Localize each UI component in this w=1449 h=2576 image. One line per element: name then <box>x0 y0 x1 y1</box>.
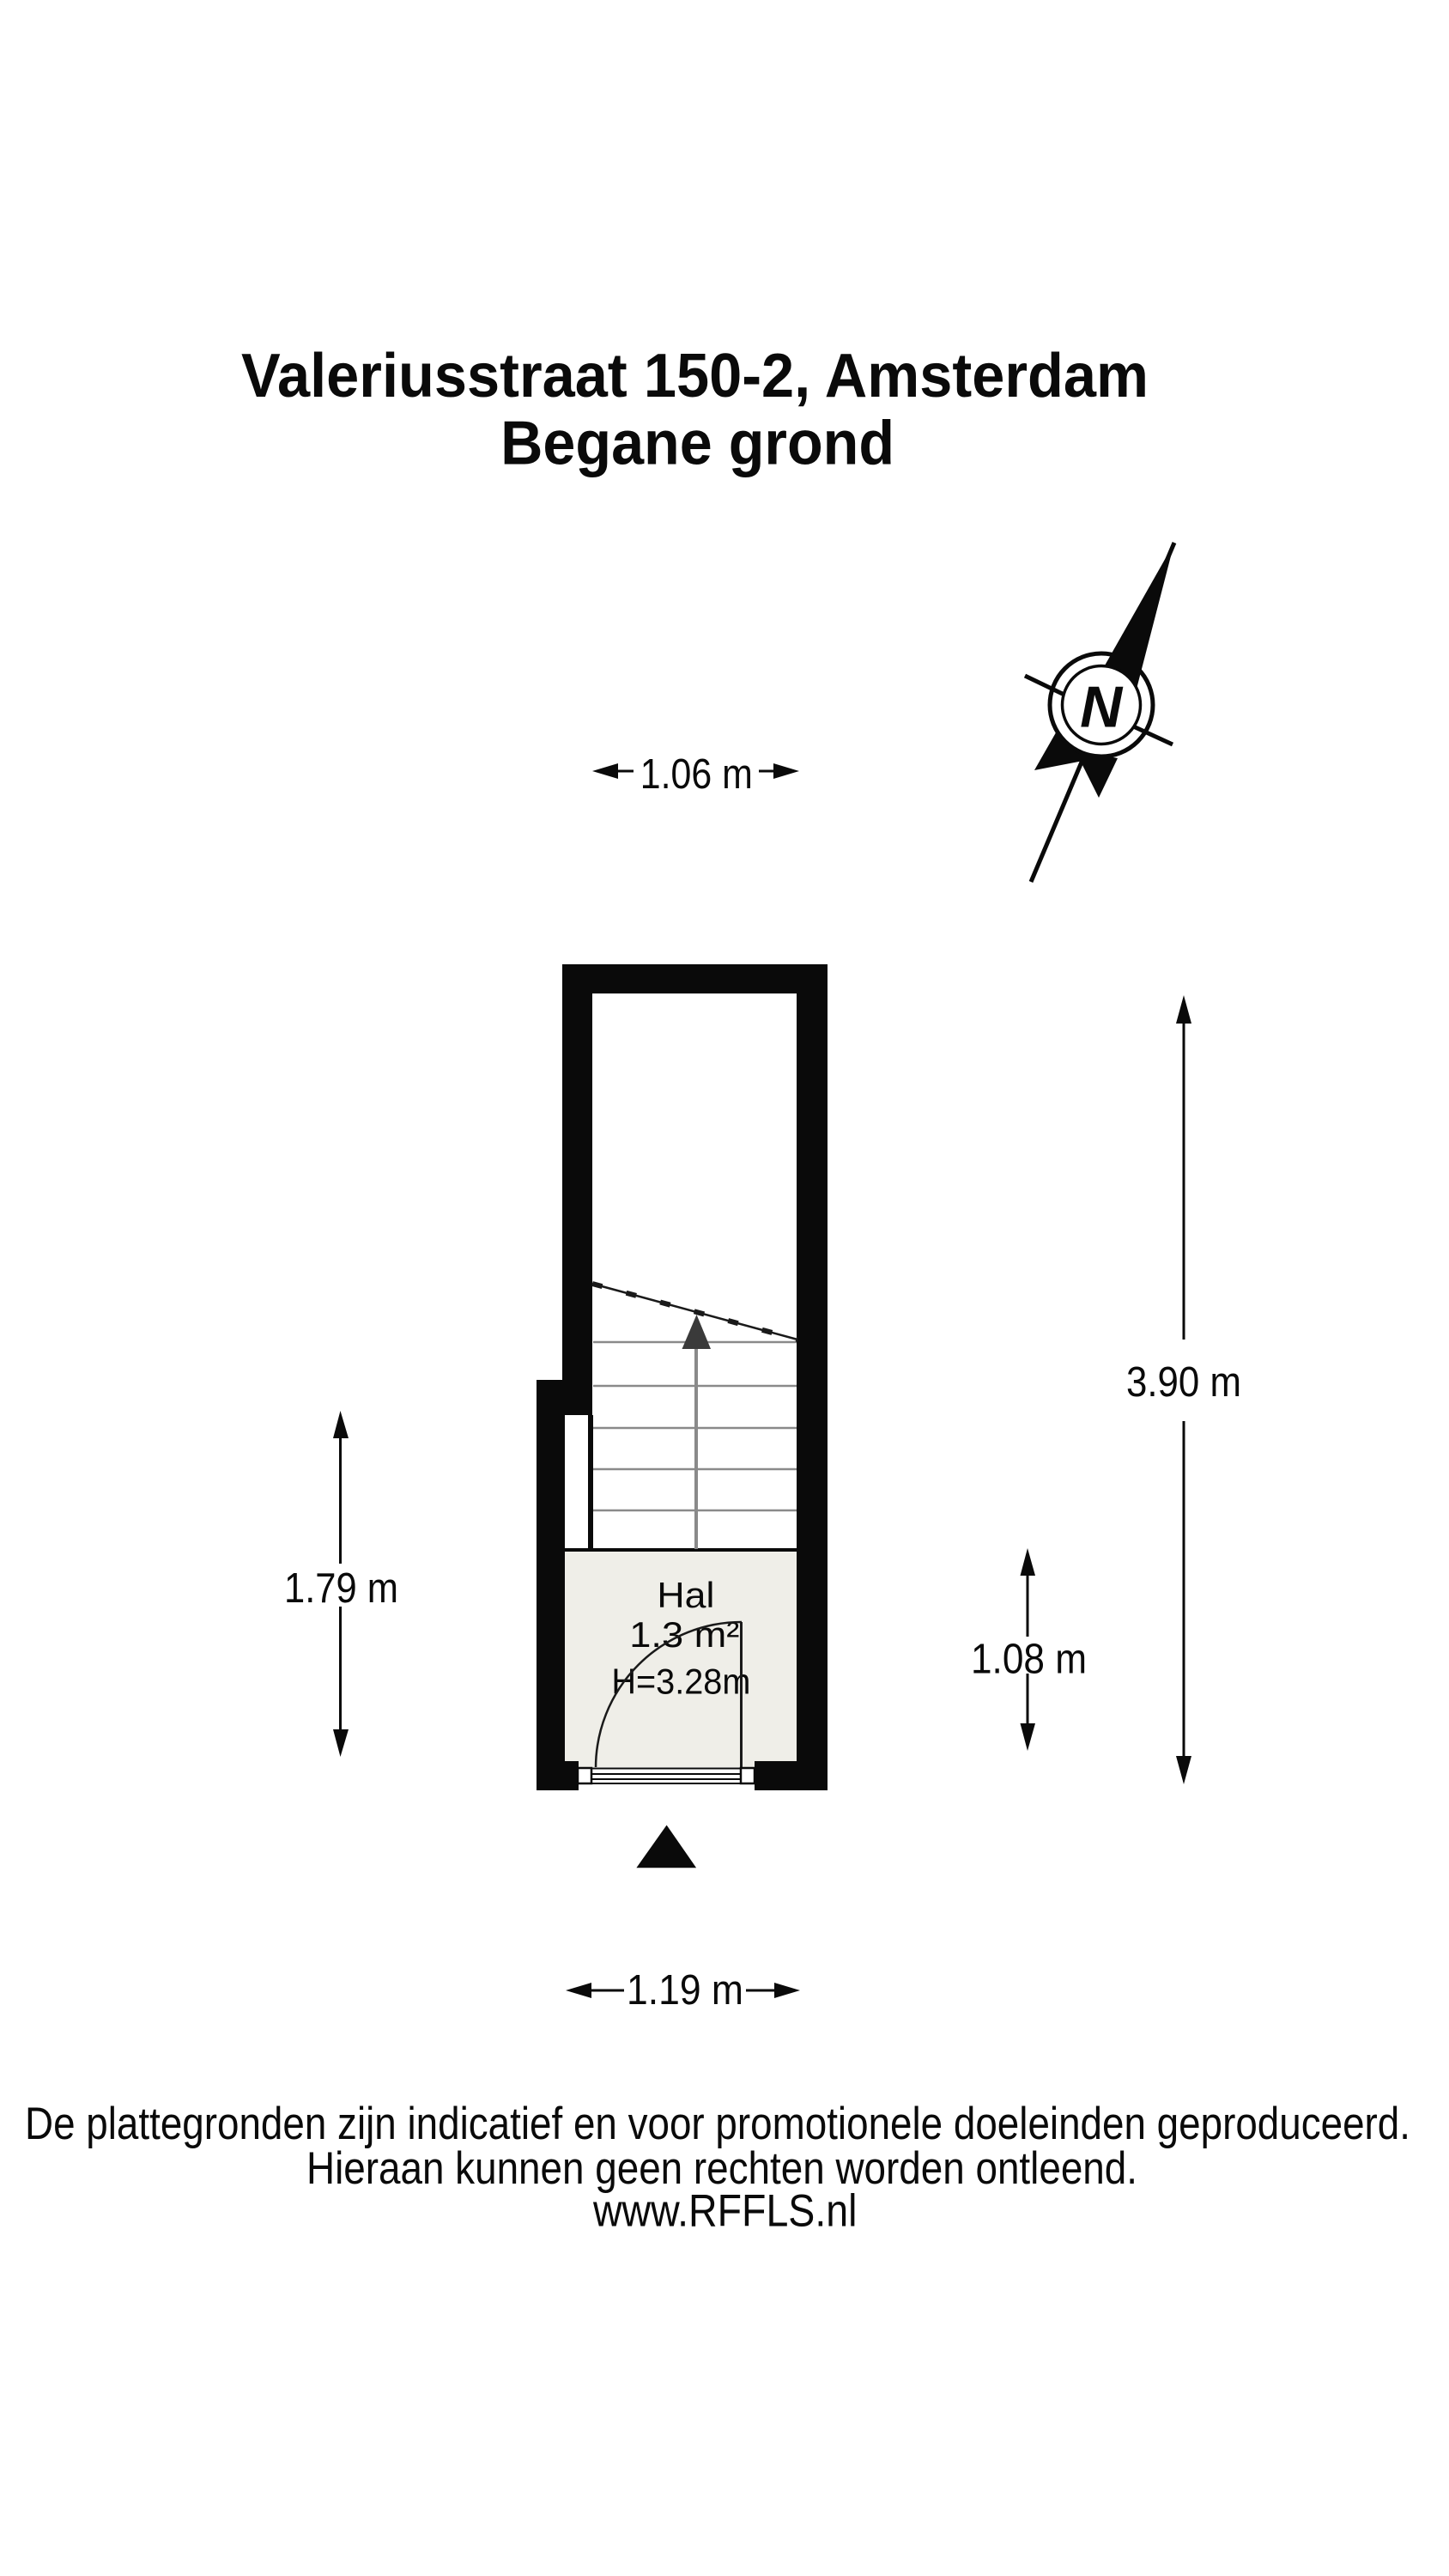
svg-text:De plattegronden zijn indicati: De plattegronden zijn indicatief en voor… <box>25 2099 1410 2149</box>
svg-text:www.RFFLS.nl: www.RFFLS.nl <box>592 2186 857 2237</box>
svg-text:3.90 m: 3.90 m <box>1126 1359 1241 1406</box>
svg-text:Begane grond: Begane grond <box>500 409 894 478</box>
svg-text:1.19 m: 1.19 m <box>627 1967 743 2014</box>
svg-text:Valeriusstraat 150-2, Amsterda: Valeriusstraat 150-2, Amsterdam <box>241 341 1149 410</box>
svg-text:H=3.28m: H=3.28m <box>611 1662 750 1702</box>
svg-text:N: N <box>1080 675 1124 740</box>
svg-text:1.79 m: 1.79 m <box>284 1565 398 1612</box>
svg-text:Hal: Hal <box>657 1575 714 1615</box>
svg-text:1.06 m: 1.06 m <box>640 751 753 798</box>
